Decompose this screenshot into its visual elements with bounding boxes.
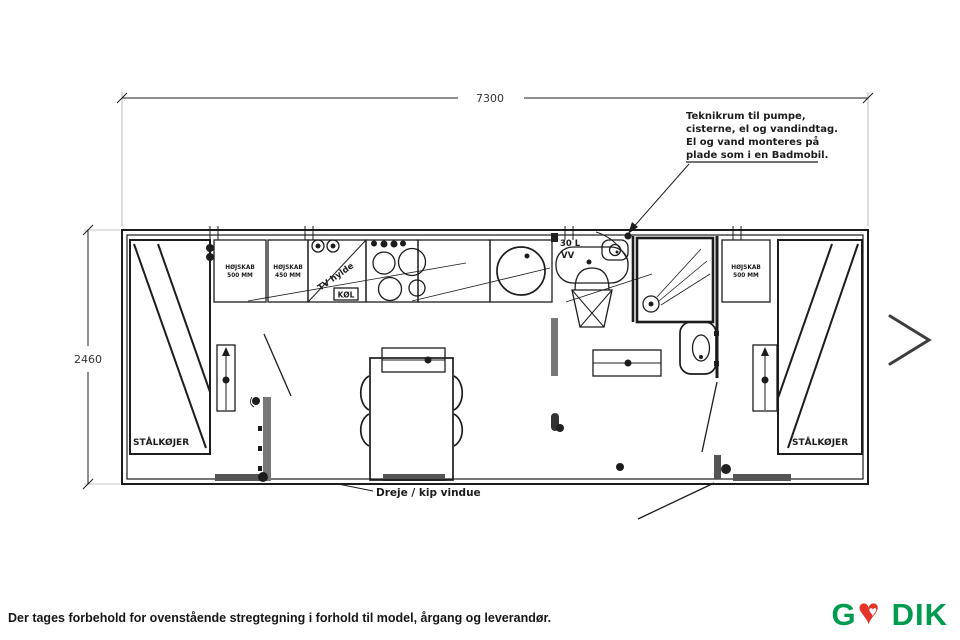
cabinet-left-1: HØJSKAB 500 MM [214,240,266,302]
shower [637,238,713,322]
hook-icon [616,463,624,471]
chair [454,376,462,410]
coat-hook-icon [252,397,260,405]
bath-sliding-door [551,318,564,432]
chair [454,414,462,446]
cabinet-3-size: 500 MM [733,273,759,279]
logo-prefix: G [831,597,856,633]
window-label: Dreje / kip vindue [338,484,481,499]
toilet [680,322,719,374]
dimension-width-label: 7300 [476,92,504,105]
stove [366,240,426,302]
chair [361,414,369,446]
entry-door [638,455,731,519]
kitchen-counter [418,240,490,302]
tv-fridge-unit: TV hylde KØL [308,240,366,302]
note-line-2: cisterne, el og vandindtag. [686,124,838,135]
cabinet-3-name: HØJSKAB [731,264,761,271]
godik-logo: G ♥ ♥ DIK [831,596,948,634]
entry-door-leader [638,483,714,519]
tech-room-note: Teknikrum til pumpe, cisterne, el og van… [628,111,838,234]
dining-table [361,348,463,480]
heart-icon: ♥ ♥ [858,596,891,634]
cabinet-1-size: 500 MM [227,273,253,279]
bath-shelf [593,350,661,376]
door-thresholds [215,474,791,481]
chair [361,376,369,410]
washbasin [572,268,612,327]
partition-left [250,334,291,482]
sink-unit [490,240,552,302]
cabinet-left-2: HØJSKAB 450 MM [268,240,308,302]
boiler-type-label: VV [561,251,575,261]
bunk-right-label: STÅLKØJER [792,437,848,448]
boiler-volume-label: 30 L [560,239,581,249]
cabinet-2-name: HØJSKAB [273,264,303,271]
fridge-label: KØL [338,291,355,300]
disclaimer-text: Der tages forbehold for ovenstående stre… [8,611,551,625]
cabinet-right: HØJSKAB 500 MM [722,240,770,302]
wardrobe-right [753,345,777,411]
window-label-text: Dreje / kip vindue [376,487,481,499]
bunk-left: STÅLKØJER [130,240,210,454]
note-line-3: El og vand monteres på [686,135,819,148]
bunk-left-label: STÅLKØJER [133,437,189,448]
cabinet-1-name: HØJSKAB [225,264,255,271]
shelf-left [217,345,235,411]
bedroom-door-leaf [264,334,291,396]
floorplan-canvas: 7300 2460 Teknikrum til pumpe, cisterne,… [0,0,960,600]
wall-fittings [206,240,339,261]
logo-suffix: DIK [892,597,948,633]
next-arrow-icon[interactable] [890,316,929,364]
dimension-height-label: 2460 [74,353,102,366]
cabinet-2-size: 450 MM [275,273,301,279]
bunk-right: STÅLKØJER [778,240,862,454]
note-line-1: Teknikrum til pumpe, [686,111,806,122]
note-line-4: plade som i en Badmobil. [686,150,828,161]
bathroom-door-leaf [702,382,717,452]
dimension-height: 2460 [74,225,120,489]
